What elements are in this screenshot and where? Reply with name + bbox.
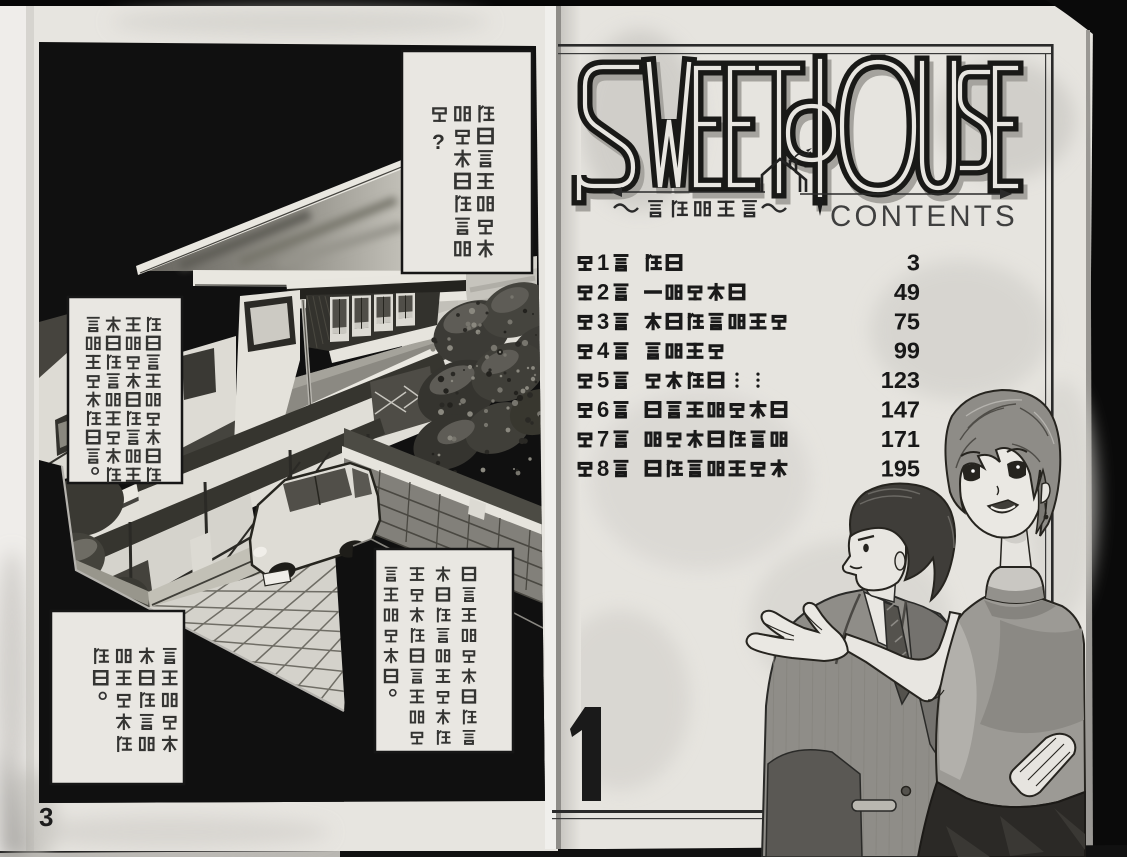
svg-text:147: 147 (881, 397, 920, 423)
svg-text:3: 3 (907, 250, 920, 276)
svg-text:5: 5 (597, 368, 609, 393)
svg-text:49: 49 (894, 279, 920, 305)
svg-text:8: 8 (597, 456, 609, 481)
svg-text:CONTENTS: CONTENTS (830, 200, 1018, 233)
svg-text:?: ? (432, 131, 445, 154)
svg-text:6: 6 (597, 397, 609, 422)
svg-text:171: 171 (881, 426, 920, 452)
svg-text:99: 99 (894, 338, 920, 364)
svg-text:195: 195 (881, 455, 920, 481)
svg-text:3: 3 (597, 309, 609, 334)
svg-text:1: 1 (597, 250, 609, 275)
svg-text:2: 2 (597, 279, 609, 304)
svg-text:4: 4 (597, 338, 610, 363)
svg-text:7: 7 (597, 426, 609, 451)
svg-text:75: 75 (894, 308, 920, 334)
svg-text:123: 123 (881, 367, 920, 393)
svg-text:3: 3 (39, 802, 53, 832)
